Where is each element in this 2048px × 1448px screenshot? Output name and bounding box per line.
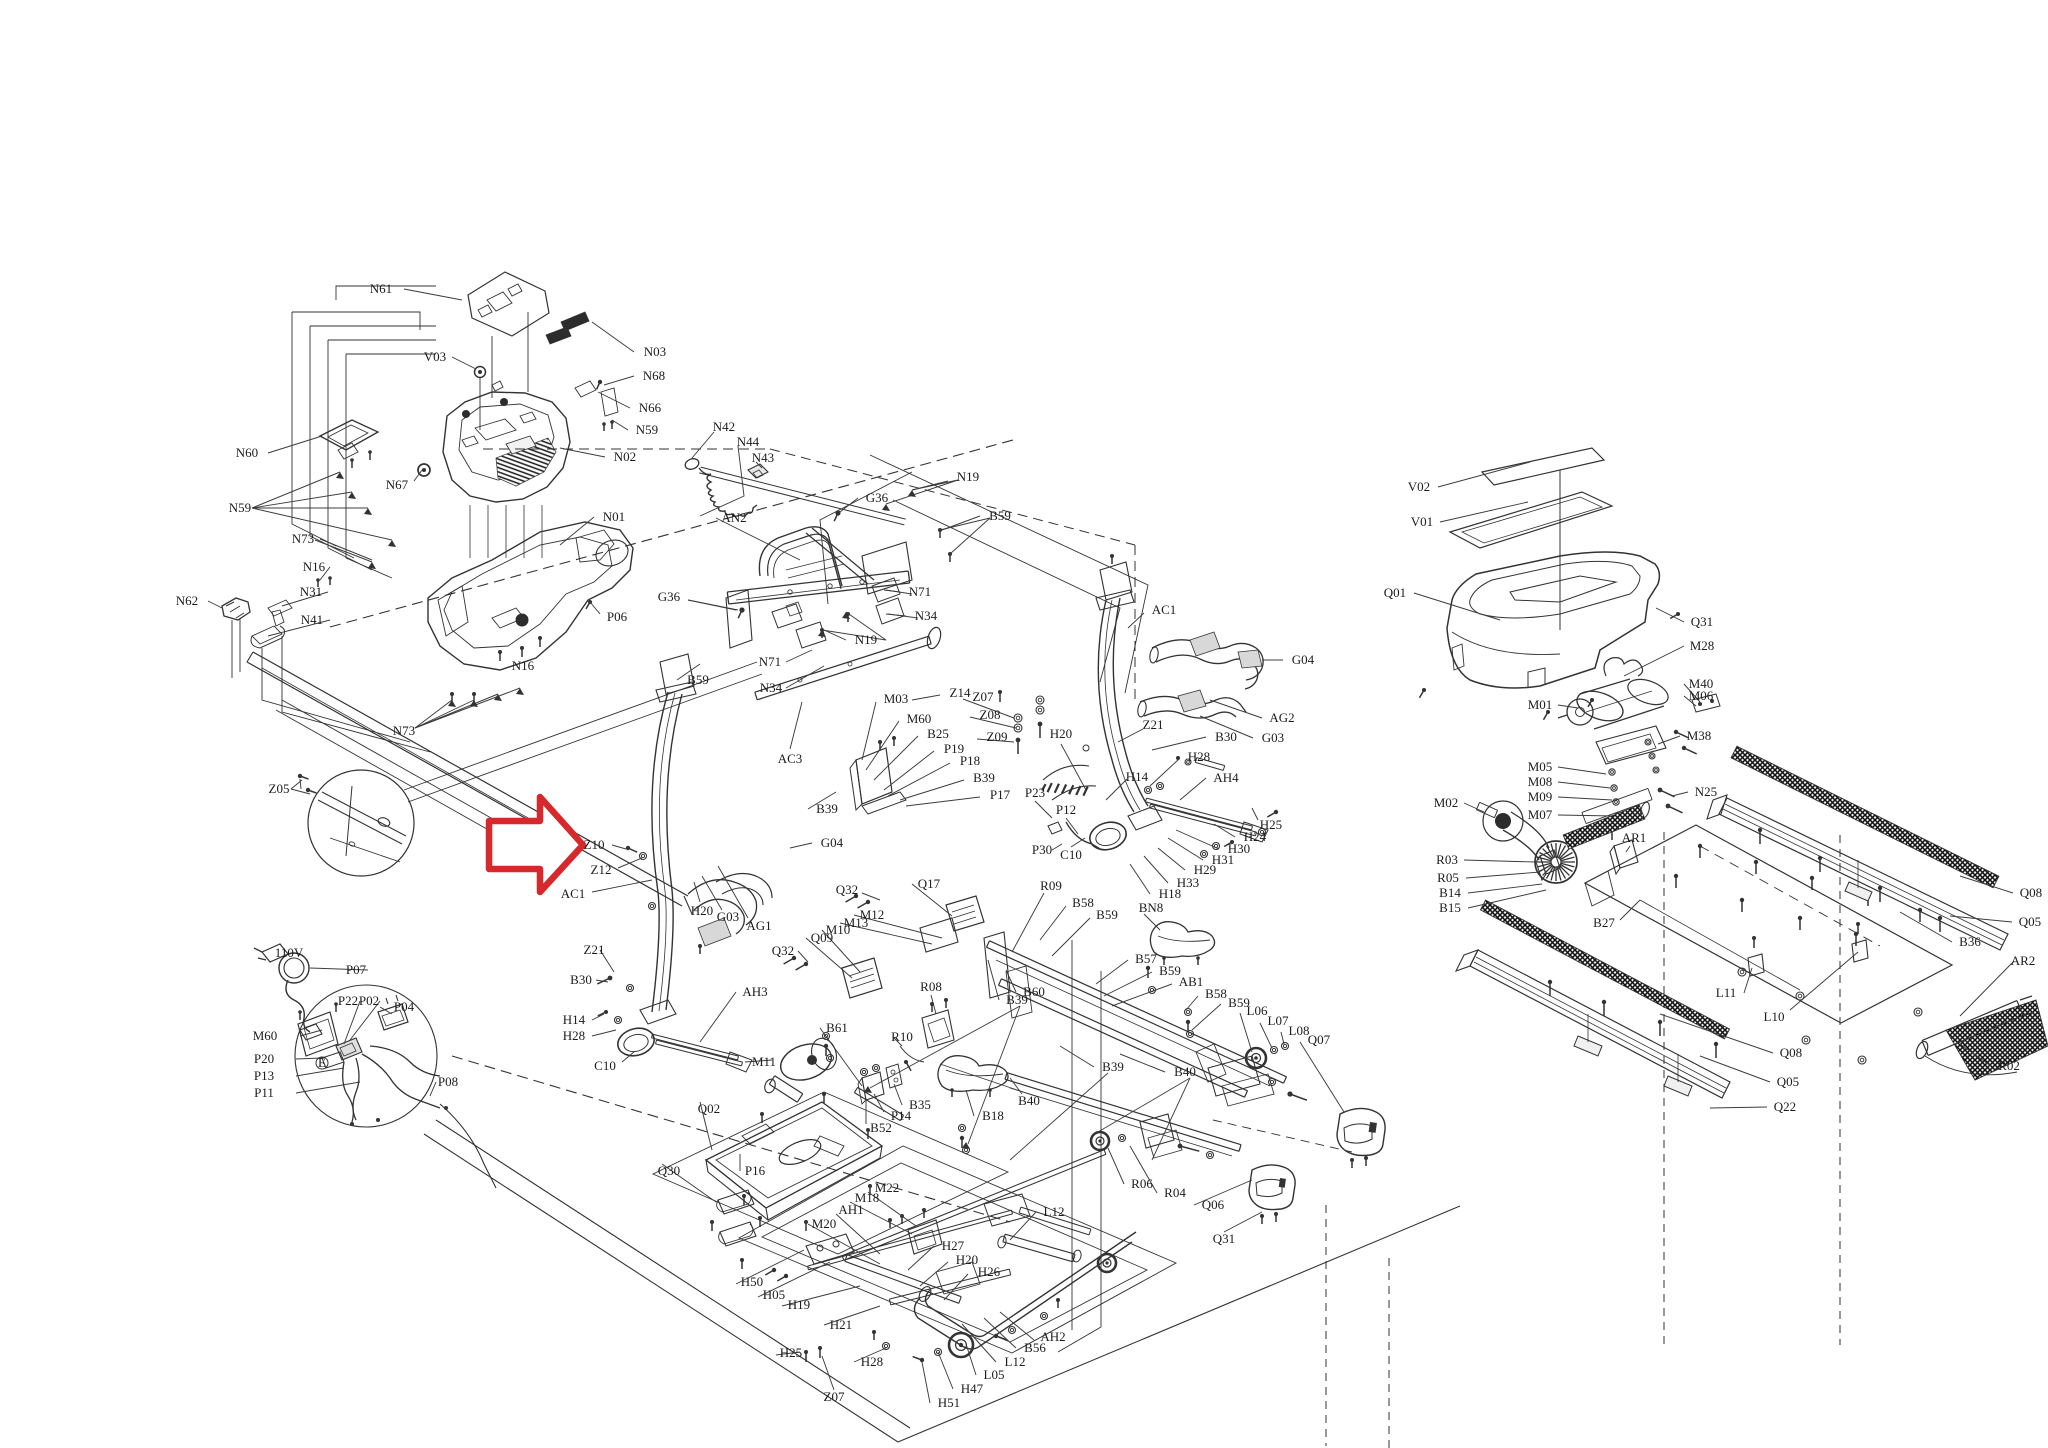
svg-text:Q17: Q17 (918, 876, 941, 891)
svg-text:M28: M28 (1690, 638, 1715, 653)
svg-text:N44: N44 (737, 434, 760, 449)
svg-text:M07: M07 (1528, 807, 1553, 822)
svg-text:AR2: AR2 (2011, 953, 2036, 968)
svg-text:N31: N31 (300, 584, 322, 599)
svg-text:AC1: AC1 (561, 886, 586, 901)
svg-text:H28: H28 (1188, 749, 1210, 764)
svg-text:B39: B39 (1102, 1059, 1124, 1074)
svg-text:H51: H51 (938, 1395, 960, 1410)
svg-text:B39: B39 (973, 770, 995, 785)
svg-text:H21: H21 (830, 1317, 852, 1332)
svg-text:Q32: Q32 (836, 882, 858, 897)
svg-text:R10: R10 (891, 1029, 913, 1044)
svg-text:M60: M60 (907, 711, 932, 726)
svg-text:Z07: Z07 (824, 1389, 845, 1404)
svg-text:AN2: AN2 (721, 510, 746, 525)
svg-text:R06: R06 (1131, 1176, 1153, 1191)
svg-text:G36: G36 (658, 589, 681, 604)
svg-text:N16: N16 (303, 559, 326, 574)
svg-text:P02: P02 (359, 993, 379, 1008)
svg-text:Q32: Q32 (772, 943, 794, 958)
svg-text:M38: M38 (1687, 728, 1712, 743)
svg-text:M03: M03 (884, 691, 909, 706)
svg-text:H14: H14 (1126, 769, 1149, 784)
svg-text:P30: P30 (1032, 842, 1052, 857)
svg-text:BN8: BN8 (1139, 900, 1164, 915)
svg-text:Q01: Q01 (1384, 585, 1406, 600)
svg-text:H25: H25 (780, 1345, 802, 1360)
svg-text:P06: P06 (607, 609, 628, 624)
svg-text:Q08: Q08 (2020, 885, 2042, 900)
svg-text:N59: N59 (636, 422, 658, 437)
svg-text:N59: N59 (229, 500, 251, 515)
svg-text:N19: N19 (855, 632, 877, 647)
svg-text:R08: R08 (920, 979, 942, 994)
svg-text:G03: G03 (717, 909, 739, 924)
svg-text:N25: N25 (1695, 784, 1717, 799)
svg-text:M60: M60 (253, 1028, 278, 1043)
svg-text:N43: N43 (752, 450, 774, 465)
svg-text:Q09: Q09 (811, 930, 833, 945)
svg-text:B58: B58 (1205, 986, 1227, 1001)
svg-text:V02: V02 (1408, 479, 1430, 494)
svg-text:N60: N60 (236, 445, 258, 460)
svg-text:N73: N73 (393, 723, 415, 738)
svg-text:G36: G36 (866, 490, 889, 505)
svg-text:Q05: Q05 (2019, 914, 2041, 929)
svg-text:N34: N34 (760, 680, 783, 695)
svg-text:N16: N16 (512, 658, 535, 673)
svg-text:P14: P14 (891, 1108, 912, 1123)
svg-text:H28: H28 (861, 1354, 883, 1369)
svg-text:N71: N71 (759, 654, 781, 669)
svg-text:P22: P22 (338, 993, 358, 1008)
svg-text:G04: G04 (821, 835, 844, 850)
svg-text:N02: N02 (614, 449, 636, 464)
svg-text:Q07: Q07 (1308, 1032, 1331, 1047)
svg-text:B52: B52 (870, 1120, 892, 1135)
svg-text:M02: M02 (1434, 795, 1459, 810)
svg-text:G04: G04 (1292, 652, 1315, 667)
svg-text:AR1: AR1 (1622, 830, 1647, 845)
svg-text:N62: N62 (176, 593, 198, 608)
svg-text:B14: B14 (1439, 885, 1461, 900)
svg-text:AG1: AG1 (746, 918, 771, 933)
svg-text:B59: B59 (1159, 963, 1181, 978)
svg-text:V01: V01 (1411, 514, 1433, 529)
svg-text:N68: N68 (643, 368, 665, 383)
svg-text:R04: R04 (1164, 1185, 1186, 1200)
svg-text:H14: H14 (563, 1012, 586, 1027)
svg-text:Z21: Z21 (1143, 717, 1164, 732)
svg-text:B56: B56 (1024, 1340, 1046, 1355)
svg-text:H18: H18 (1159, 886, 1181, 901)
svg-text:L08: L08 (1289, 1023, 1310, 1038)
svg-text:H20: H20 (956, 1252, 978, 1267)
svg-text:H20: H20 (691, 903, 713, 918)
svg-text:AB1: AB1 (1179, 974, 1204, 989)
svg-text:N73: N73 (292, 531, 314, 546)
svg-text:Z05: Z05 (269, 781, 290, 796)
svg-text:P04: P04 (394, 999, 415, 1014)
svg-text:R03: R03 (1436, 852, 1458, 867)
svg-text:Q30: Q30 (658, 1163, 680, 1178)
svg-text:P17: P17 (990, 787, 1011, 802)
svg-text:B40: B40 (1174, 1064, 1196, 1079)
svg-text:AG2: AG2 (1269, 710, 1294, 725)
svg-text:Z07: Z07 (973, 689, 994, 704)
svg-text:L07: L07 (1268, 1013, 1289, 1028)
svg-text:L06: L06 (1247, 1003, 1268, 1018)
svg-text:P18: P18 (960, 753, 980, 768)
svg-text:B59: B59 (1096, 907, 1118, 922)
svg-text:H26: H26 (978, 1264, 1001, 1279)
svg-text:N41: N41 (301, 612, 323, 627)
svg-text:L10: L10 (1764, 1009, 1785, 1024)
svg-text:B39: B39 (816, 801, 838, 816)
svg-text:B35: B35 (909, 1097, 931, 1112)
svg-text:G03: G03 (1262, 730, 1284, 745)
svg-text:Z08: Z08 (980, 707, 1001, 722)
svg-text:P20: P20 (254, 1051, 274, 1066)
svg-text:N67: N67 (386, 477, 409, 492)
svg-text:P11: P11 (254, 1085, 274, 1100)
svg-text:B57: B57 (1135, 951, 1157, 966)
svg-text:Z14: Z14 (950, 685, 971, 700)
svg-text:AH1: AH1 (838, 1202, 863, 1217)
svg-text:N01: N01 (603, 509, 625, 524)
svg-text:B30: B30 (570, 972, 592, 987)
svg-text:H50: H50 (741, 1274, 763, 1289)
svg-text:AH4: AH4 (1213, 770, 1239, 785)
svg-text:M11: M11 (752, 1054, 776, 1069)
svg-text:H20: H20 (1050, 726, 1072, 741)
svg-text:P12: P12 (1056, 802, 1076, 817)
svg-text:R09: R09 (1040, 878, 1062, 893)
svg-text:L11: L11 (1716, 985, 1736, 1000)
svg-text:Z10: Z10 (584, 837, 605, 852)
svg-text:B61: B61 (826, 1020, 848, 1035)
svg-text:B18: B18 (982, 1108, 1004, 1123)
svg-text:B36: B36 (1959, 934, 1981, 949)
svg-text:Z09: Z09 (987, 729, 1008, 744)
svg-text:P08: P08 (438, 1074, 458, 1089)
svg-text:P13: P13 (254, 1068, 274, 1083)
svg-text:C10: C10 (1060, 847, 1082, 862)
svg-text:B40: B40 (1018, 1093, 1040, 1108)
svg-text:H19: H19 (788, 1297, 810, 1312)
svg-text:N19: N19 (957, 469, 979, 484)
svg-text:L05: L05 (984, 1367, 1005, 1382)
svg-text:M08: M08 (1528, 774, 1553, 789)
svg-text:M09: M09 (1528, 789, 1553, 804)
svg-text:B27: B27 (1593, 915, 1615, 930)
svg-text:Q31: Q31 (1213, 1231, 1235, 1246)
svg-text:R05: R05 (1437, 870, 1459, 885)
svg-text:N03: N03 (644, 344, 666, 359)
svg-text:AH3: AH3 (742, 984, 767, 999)
svg-text:Q06: Q06 (1202, 1197, 1225, 1212)
svg-text:N71: N71 (909, 584, 931, 599)
svg-text:Z21: Z21 (584, 942, 605, 957)
svg-text:E: E (318, 1055, 326, 1070)
svg-text:B59: B59 (989, 508, 1011, 523)
svg-text:Q31: Q31 (1691, 614, 1713, 629)
svg-text:B30: B30 (1215, 729, 1237, 744)
svg-text:C10: C10 (594, 1058, 616, 1073)
svg-text:Z12: Z12 (591, 862, 612, 877)
svg-text:B39: B39 (1006, 992, 1028, 1007)
svg-text:H05: H05 (763, 1287, 785, 1302)
svg-text:P07: P07 (346, 962, 367, 977)
svg-text:N34: N34 (915, 608, 938, 623)
svg-text:M05: M05 (1528, 759, 1553, 774)
svg-text:AC1: AC1 (1152, 602, 1177, 617)
svg-text:H47: H47 (961, 1381, 984, 1396)
svg-text:Q02: Q02 (698, 1101, 720, 1116)
svg-text:N61: N61 (370, 281, 392, 296)
svg-text:Q05: Q05 (1777, 1074, 1799, 1089)
svg-text:Q08: Q08 (1780, 1045, 1802, 1060)
svg-text:P23: P23 (1025, 785, 1045, 800)
svg-text:V03: V03 (424, 349, 446, 364)
svg-text:N42: N42 (713, 419, 735, 434)
svg-text:B59: B59 (687, 672, 709, 687)
svg-text:M01: M01 (1528, 697, 1553, 712)
svg-text:L12: L12 (1044, 1204, 1065, 1219)
svg-text:AC3: AC3 (778, 751, 803, 766)
svg-text:B58: B58 (1072, 895, 1094, 910)
svg-text:N66: N66 (639, 400, 662, 415)
svg-text:R02: R02 (1998, 1058, 2020, 1073)
svg-text:P16: P16 (745, 1163, 766, 1178)
svg-text:M20: M20 (812, 1216, 837, 1231)
svg-text:B15: B15 (1439, 900, 1461, 915)
svg-text:H28: H28 (563, 1028, 585, 1043)
svg-text:B25: B25 (927, 726, 949, 741)
svg-text:M06: M06 (1689, 688, 1714, 703)
svg-text:110V: 110V (275, 945, 304, 960)
svg-text:L12: L12 (1005, 1354, 1026, 1369)
svg-text:H27: H27 (942, 1238, 965, 1253)
svg-text:Q22: Q22 (1774, 1099, 1796, 1114)
